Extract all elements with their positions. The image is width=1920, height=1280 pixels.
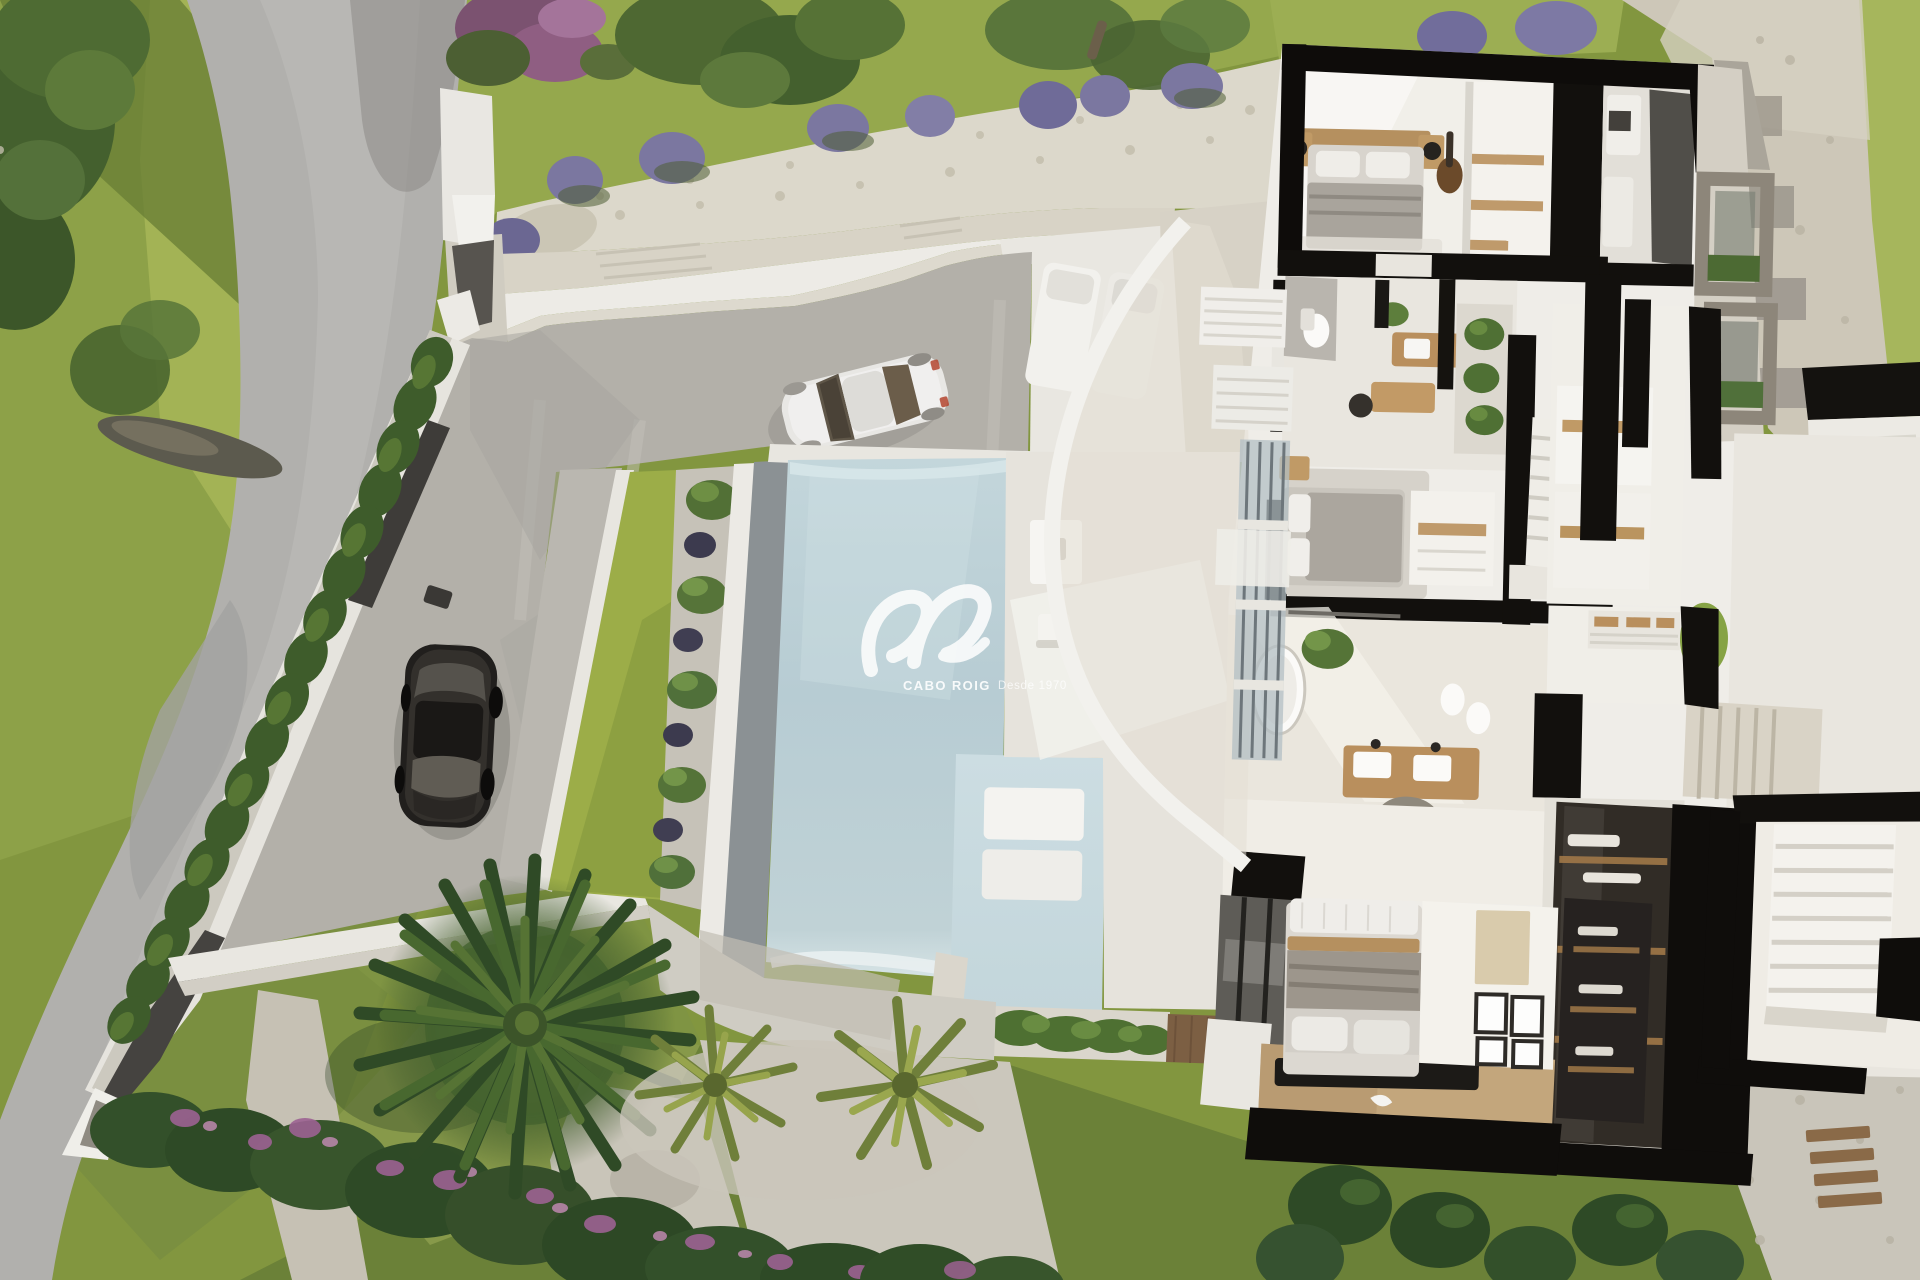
svg-text:CABO ROIG: CABO ROIG	[903, 678, 991, 693]
svg-text:Desde 1970: Desde 1970	[998, 680, 1067, 692]
